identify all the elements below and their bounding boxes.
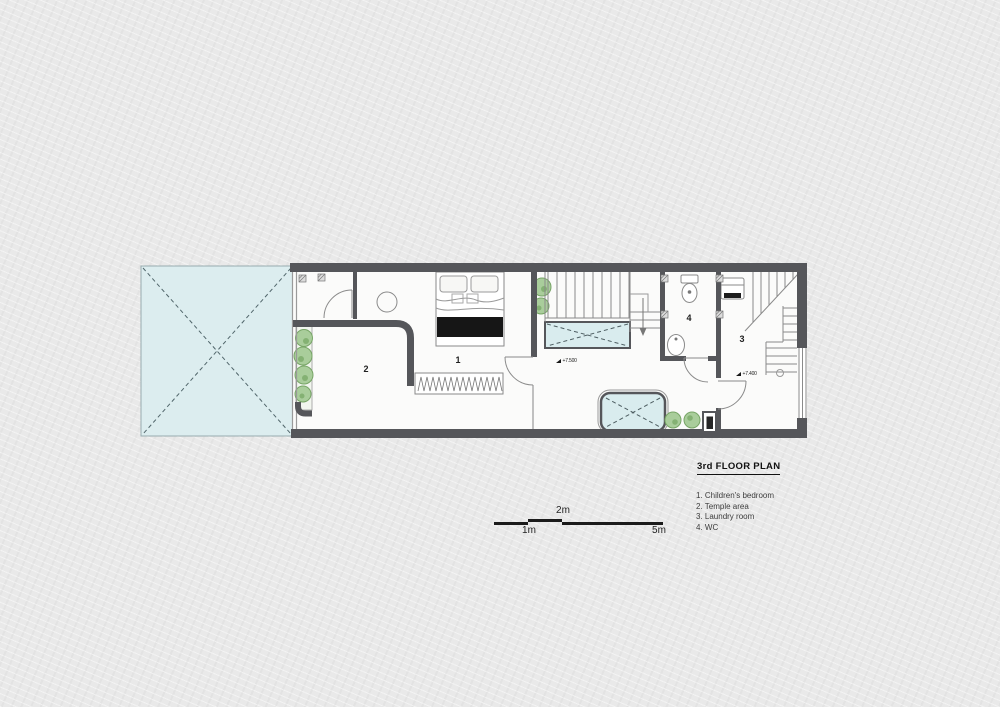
scale-label-5m: 5m [652, 525, 666, 536]
scale-label-2m: 2m [556, 505, 570, 516]
wall-bottom [291, 429, 807, 438]
drawing-sheet: 1 2 3 4 +7.500 +7.400 3rd FLOOR PLAN 1. … [0, 0, 1000, 707]
wall-vestibule [353, 263, 357, 319]
stair-void-skylight [545, 322, 630, 348]
bed [436, 272, 504, 346]
legend: 1. Children's bedroom 2. Temple area 3. … [696, 491, 774, 533]
plan-title: 3rd FLOOR PLAN [697, 461, 780, 475]
room-label-children-bedroom: 1 [455, 355, 460, 365]
wall-bedroom [531, 272, 537, 357]
wall-right-upper [797, 263, 807, 348]
legend-item-laundry-room: 3. Laundry room [696, 512, 774, 523]
sink [668, 335, 685, 356]
legend-item-temple-area: 2. Temple area [696, 502, 774, 513]
room-label-laundry-room: 3 [739, 334, 744, 344]
wall-wc-stub [708, 356, 716, 361]
terrace-void [141, 266, 293, 436]
courtyard-skylight [598, 390, 668, 433]
level-marker-hall: +7.500 [556, 358, 577, 364]
wall-wc-bottom [660, 356, 686, 361]
level-marker-laundry: +7.400 [736, 371, 757, 377]
washing-machine [721, 278, 744, 299]
wall-right-lower [797, 418, 807, 438]
column [703, 412, 716, 432]
room-label-temple-area: 2 [363, 364, 368, 374]
toilet [681, 275, 698, 303]
level-marker-text: +7.400 [743, 371, 757, 377]
scale-segment-2-5m [562, 522, 663, 525]
level-marker-text: +7.500 [563, 358, 577, 364]
floor-plan-drawing [0, 0, 1000, 707]
legend-item-children-bedroom: 1. Children's bedroom [696, 491, 774, 502]
wall-top [290, 263, 807, 272]
room-label-wc: 4 [686, 313, 691, 323]
level-marker-icon [736, 372, 741, 376]
scale-segment-1-2m [528, 519, 562, 522]
scale-label-1m: 1m [522, 525, 536, 536]
wardrobe [415, 373, 503, 394]
level-marker-icon [556, 359, 561, 363]
legend-item-wc: 4. WC [696, 523, 774, 534]
